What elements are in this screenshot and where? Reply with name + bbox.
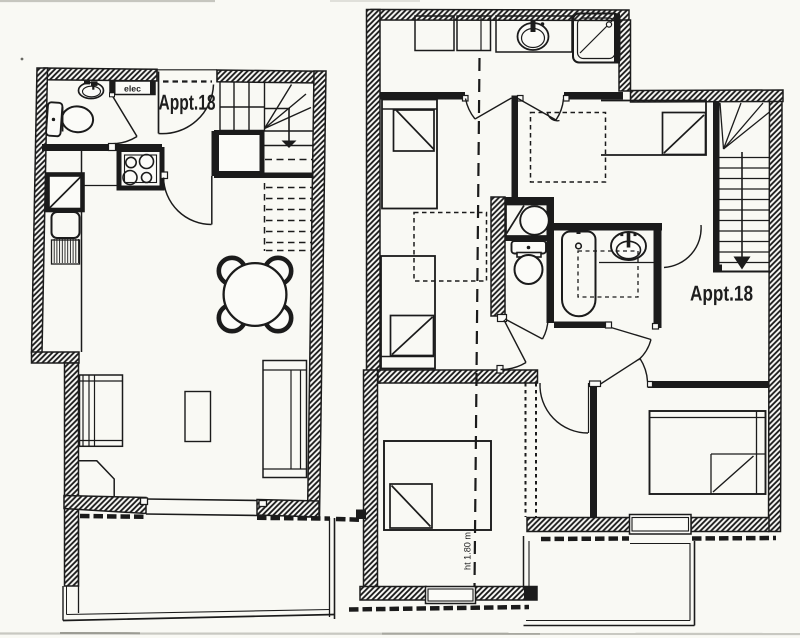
svg-text:Appt.18: Appt.18 <box>690 282 753 306</box>
svg-text:Appt.18: Appt.18 <box>158 91 215 115</box>
svg-text:elec: elec <box>124 83 141 93</box>
svg-text:ht 1.80 m: ht 1.80 m <box>463 532 474 570</box>
